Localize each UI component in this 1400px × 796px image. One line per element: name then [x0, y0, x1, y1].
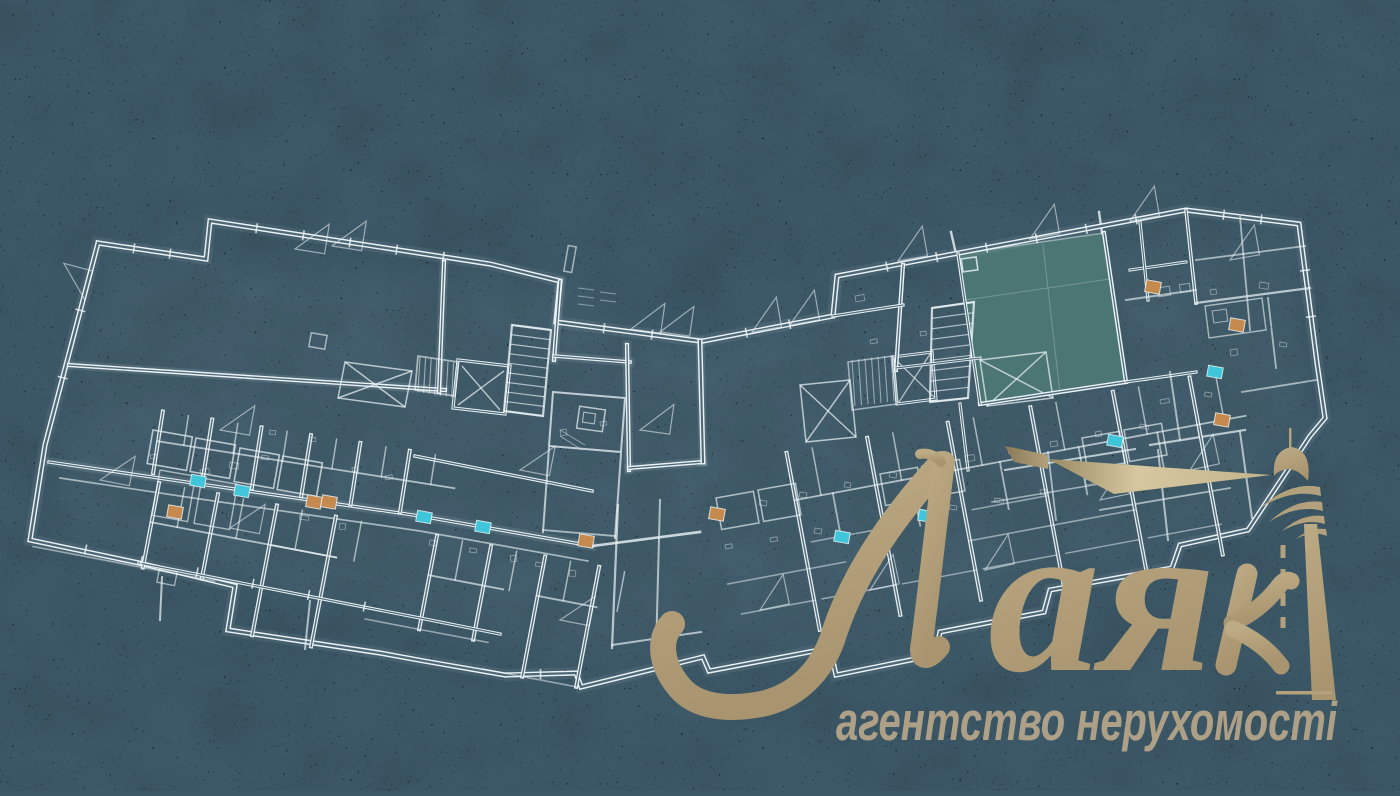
svg-text:агентство нерухомості: агентство нерухомості — [836, 690, 1338, 752]
svg-text:ая: ая — [988, 477, 1216, 718]
